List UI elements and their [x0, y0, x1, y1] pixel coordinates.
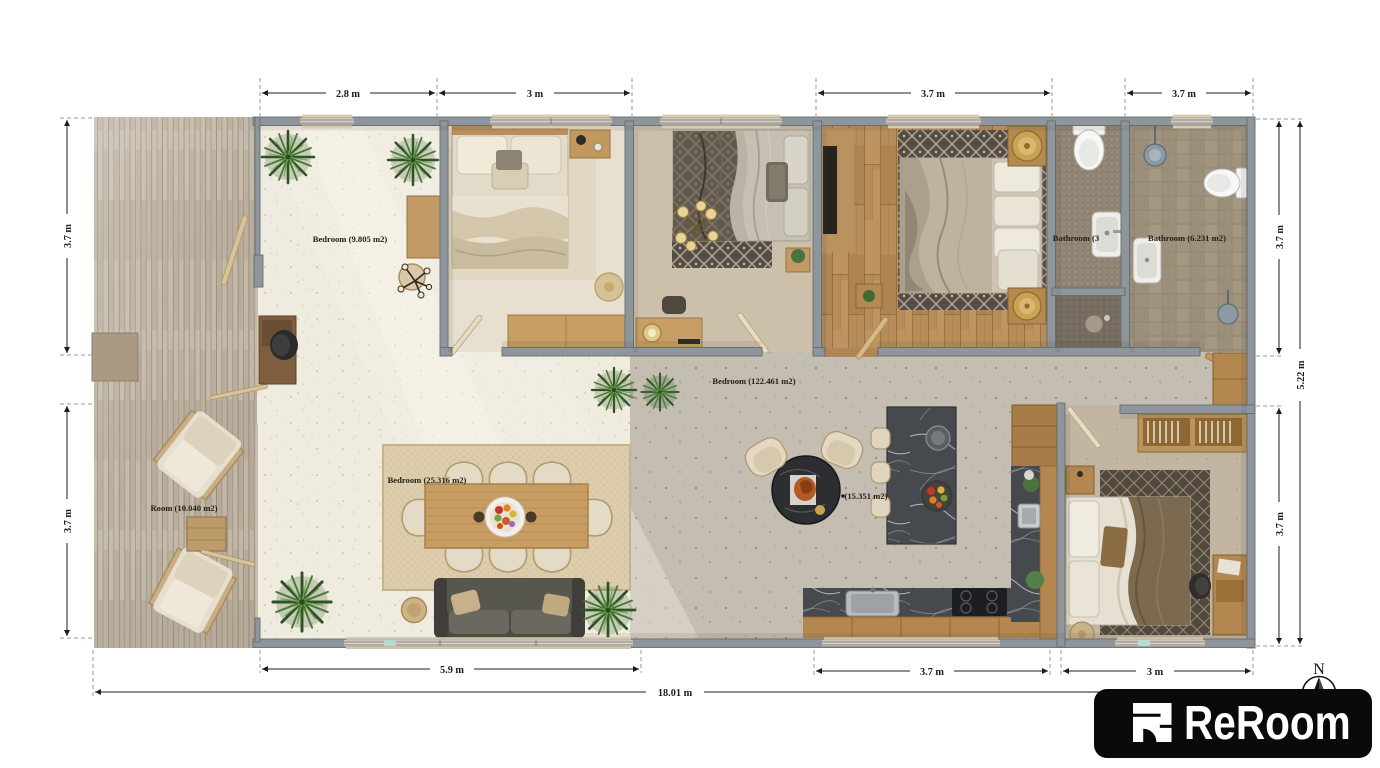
- svg-text:5.22 m: 5.22 m: [1296, 360, 1307, 390]
- svg-text:Bathroom (3: Bathroom (3: [1053, 233, 1099, 243]
- svg-text:3.7 m: 3.7 m: [63, 509, 74, 533]
- svg-text:3.7 m: 3.7 m: [63, 224, 74, 248]
- svg-text:Bedroom (25.316 m2): Bedroom (25.316 m2): [388, 475, 467, 485]
- svg-text:(15.351 m2): (15.351 m2): [845, 491, 888, 501]
- svg-text:3.7 m: 3.7 m: [1275, 225, 1286, 249]
- svg-text:Bedroom (122.461 m2): Bedroom (122.461 m2): [712, 376, 795, 386]
- svg-text:3.7 m: 3.7 m: [1172, 89, 1196, 100]
- svg-text:5.9 m: 5.9 m: [440, 665, 464, 676]
- svg-text:N: N: [1313, 661, 1325, 678]
- svg-text:3 m: 3 m: [527, 89, 544, 100]
- svg-text:Room (10.040 m2): Room (10.040 m2): [150, 503, 217, 513]
- svg-text:ReRoom: ReRoom: [1184, 697, 1351, 750]
- svg-text:3.7 m: 3.7 m: [920, 667, 944, 678]
- svg-text:3 m: 3 m: [1147, 667, 1164, 678]
- svg-text:Bedroom (9.805 m2): Bedroom (9.805 m2): [313, 234, 388, 244]
- svg-text:18.01 m: 18.01 m: [658, 688, 693, 699]
- svg-text:Bathroom (6.231 m2): Bathroom (6.231 m2): [1148, 233, 1226, 243]
- svg-text:2.8 m: 2.8 m: [336, 89, 360, 100]
- svg-text:3.7 m: 3.7 m: [1275, 512, 1286, 536]
- svg-text:3.7 m: 3.7 m: [921, 89, 945, 100]
